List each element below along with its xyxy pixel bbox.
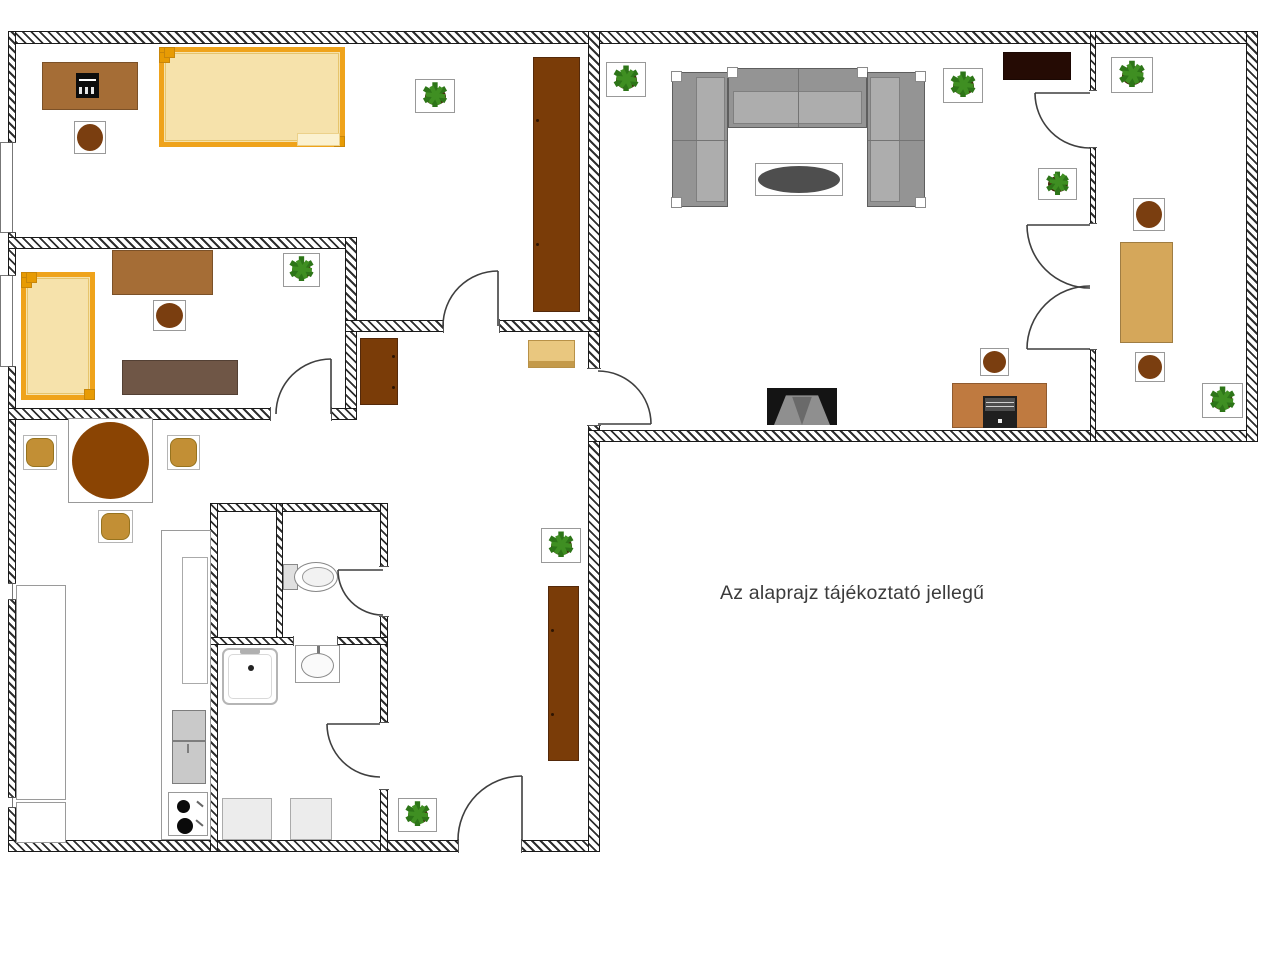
disclaimer-text: Az alaprajz tájékoztató jellegű (720, 582, 984, 605)
bedroom1-wardrobe (533, 57, 580, 312)
wardrobe-handle-icon (551, 713, 554, 716)
plant-icon: ✱ (1034, 161, 1082, 207)
bedroom1-stool (74, 121, 106, 154)
fridge-divider (173, 740, 205, 742)
bedroom2-dresser (122, 360, 238, 395)
bed-corner-knob (164, 47, 175, 58)
dining-chair-right (167, 435, 200, 470)
sofa-top-section (728, 68, 867, 128)
computer-led (998, 419, 1002, 423)
door-entrance (456, 774, 526, 844)
wardrobe-handle-icon (551, 629, 554, 632)
toilet-bowl-inner (302, 567, 334, 587)
washbasin-icon (301, 653, 334, 678)
bed-inner-line (165, 53, 339, 141)
sofa-corner-bracket (671, 197, 682, 208)
door-swing-icon (1035, 93, 1090, 148)
sofa-seam (798, 69, 799, 127)
door-swing-icon (1027, 286, 1090, 349)
rightroom-desk (1120, 242, 1173, 343)
coffee-table-ellipse (758, 166, 840, 193)
window-kitchen-a (8, 583, 16, 600)
coffee-table (755, 163, 843, 196)
door-bathroom (325, 722, 384, 781)
door-swing-icon (338, 570, 383, 615)
door-double-top (1025, 223, 1094, 292)
computer-desk-stool (980, 348, 1009, 376)
wall-bath-right (380, 503, 388, 852)
fridge-handle (187, 744, 189, 753)
wardrobe-handle-icon (536, 119, 539, 122)
bed-corner-knob (26, 272, 37, 283)
wall-bath-left (210, 503, 218, 852)
stove-burner-icon (177, 818, 193, 834)
bedroom1-stool-circle (77, 124, 103, 151)
dining-table (68, 418, 153, 503)
rightroom-stool-top (1133, 198, 1165, 231)
dining-chair-bottom (98, 510, 133, 543)
rightroom-stool-top-circle (1136, 201, 1162, 228)
hall-wardrobe-tall (548, 586, 579, 761)
bedroom2-desk (112, 250, 213, 295)
stove-burner-icon (177, 800, 190, 813)
chair-seat (101, 513, 130, 540)
wall-bath-inner-vertical (276, 503, 283, 645)
window-bedroom1 (8, 142, 16, 233)
bedroom2-stool-circle (156, 303, 183, 328)
door-swing-icon (1027, 225, 1090, 288)
wall-right (1246, 31, 1258, 442)
rightroom-plant-top: ✱✱ (1111, 57, 1153, 93)
key-row-line (986, 402, 1014, 403)
living-plant-left: ✱✱ (606, 62, 646, 97)
bedroom1-double-bed (159, 47, 345, 147)
bedroom2-stool (153, 300, 186, 331)
desktop-computer (983, 396, 1017, 428)
window-kitchen-b (8, 797, 16, 808)
bath-cabinet (290, 798, 332, 840)
dining-table-circle (72, 422, 149, 499)
sofa-corner-bracket (671, 71, 682, 82)
washing-machine (222, 798, 272, 840)
bedroom2-bed (21, 272, 95, 400)
key-row-line (986, 406, 1014, 407)
kitchen-counter-left-lower (16, 802, 66, 843)
bed-inner-line (27, 278, 89, 394)
door-swing-icon (443, 271, 498, 326)
bedroom1-plant: ✱✱ (415, 79, 455, 113)
window-glass-line (12, 584, 13, 599)
bed-pillow-strip (297, 133, 340, 146)
stove-knob-mark (195, 819, 203, 826)
living-plant-doorside: ✱✱ (1038, 168, 1077, 200)
wall-bath-top (210, 503, 388, 512)
hall-plant-upper: ✱✱ (541, 528, 581, 563)
hall-wardrobe-small (360, 338, 398, 405)
door-bedroom2 (274, 357, 335, 418)
window-glass-line (12, 143, 13, 232)
sofa-seam (673, 140, 727, 141)
toilet (283, 562, 338, 592)
wardrobe-handle-icon (536, 243, 539, 246)
wall-bedroom2-top (8, 237, 357, 249)
rightroom-stool-bottom-circle (1138, 355, 1162, 379)
computer-desk-stool-circle (983, 351, 1006, 373)
shower-tray (222, 648, 278, 705)
bed-corner-knob (84, 389, 95, 400)
computer-keyboard (985, 398, 1015, 411)
hall-dresser (528, 340, 575, 368)
bedroom1-printer (76, 73, 99, 98)
window-bedroom2 (8, 275, 16, 367)
kitchen-counter-inner (182, 557, 208, 684)
rightroom-plant-bottom: ✱✱ (1202, 383, 1243, 418)
stove (168, 792, 208, 836)
shower-inner-line (228, 654, 272, 699)
fridge (172, 710, 206, 784)
printer-dashes (79, 87, 95, 94)
sofa-corner-bracket (727, 67, 738, 78)
door-swing-icon (458, 776, 522, 840)
tv-cabinet (1003, 52, 1071, 80)
bedroom2-plant: ✱✱ (283, 253, 320, 287)
sofa-corner-bracket (915, 197, 926, 208)
door-swing-icon (276, 359, 331, 414)
rightroom-stool-bottom (1135, 352, 1165, 382)
wall-bottom-right (588, 430, 1258, 442)
door-hall-living (596, 369, 655, 428)
sofa-left-section (672, 72, 728, 207)
door-living-rightroom (1033, 91, 1094, 152)
door-swing-icon (598, 371, 651, 424)
dining-chair-left (23, 435, 57, 470)
washbasin (295, 645, 340, 683)
kitchen-counter-left (16, 585, 66, 800)
sofa-right-section (867, 72, 925, 207)
chair-seat (26, 438, 54, 467)
entrance-plant: ✱✱ (398, 798, 437, 832)
chair-seat (170, 438, 197, 467)
door-bedroom1 (441, 269, 502, 330)
sofa-corner-bracket (915, 71, 926, 82)
wardrobe-handle-icon (392, 355, 395, 358)
dresser-edge (529, 361, 574, 367)
printer-line (79, 79, 97, 81)
window-glass-line (12, 276, 13, 366)
tv (767, 388, 837, 425)
wardrobe-handle-icon (392, 386, 395, 389)
wall-top (9, 31, 1258, 44)
door-swing-icon (327, 724, 380, 777)
stove-knob-mark (196, 801, 203, 808)
door-double-bottom (1025, 284, 1094, 353)
door-wc (336, 568, 387, 619)
living-plant-right: ✱✱ (943, 68, 983, 103)
sofa-seam (868, 140, 924, 141)
window-glass-line (12, 798, 13, 807)
floorplan-canvas: Az alaprajz tájékoztató jellegű ✱✱✱✱✱✱✱✱… (0, 0, 1280, 955)
